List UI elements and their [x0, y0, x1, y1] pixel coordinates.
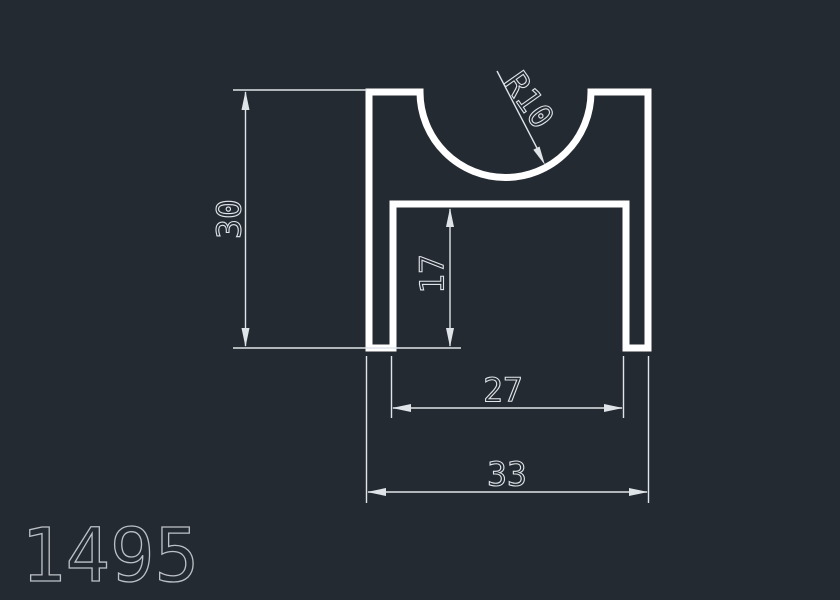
arrowhead-leader-icon	[533, 147, 545, 166]
arrowhead-left-icon	[367, 488, 386, 496]
dimension-text-channel-width: 27	[483, 371, 523, 410]
dimension-text-groove-radius: R10	[496, 64, 562, 135]
cad-drawing: 30 17 27 33	[0, 0, 840, 600]
profile-outline	[369, 92, 648, 348]
dimension-text-channel-depth: 17	[413, 254, 452, 294]
dimension-channel-width: 27	[392, 356, 624, 418]
arrowhead-right-icon	[629, 488, 648, 496]
arrowhead-up-icon	[242, 91, 250, 110]
part-number: 1495	[21, 513, 199, 599]
arrowhead-right-icon	[604, 404, 623, 412]
cad-drawing-canvas: 30 17 27 33	[0, 0, 840, 600]
dimension-overall-height: 30	[210, 90, 462, 348]
arrowhead-down-icon	[242, 328, 250, 347]
dimension-groove-radius: R10	[496, 64, 562, 165]
dimension-text-overall-height: 30	[210, 199, 249, 239]
dimension-text-overall-width: 33	[487, 455, 527, 494]
arrowhead-up-icon	[446, 208, 454, 227]
arrowhead-left-icon	[392, 404, 411, 412]
arrowhead-down-icon	[446, 328, 454, 347]
dimension-channel-depth: 17	[413, 208, 455, 347]
